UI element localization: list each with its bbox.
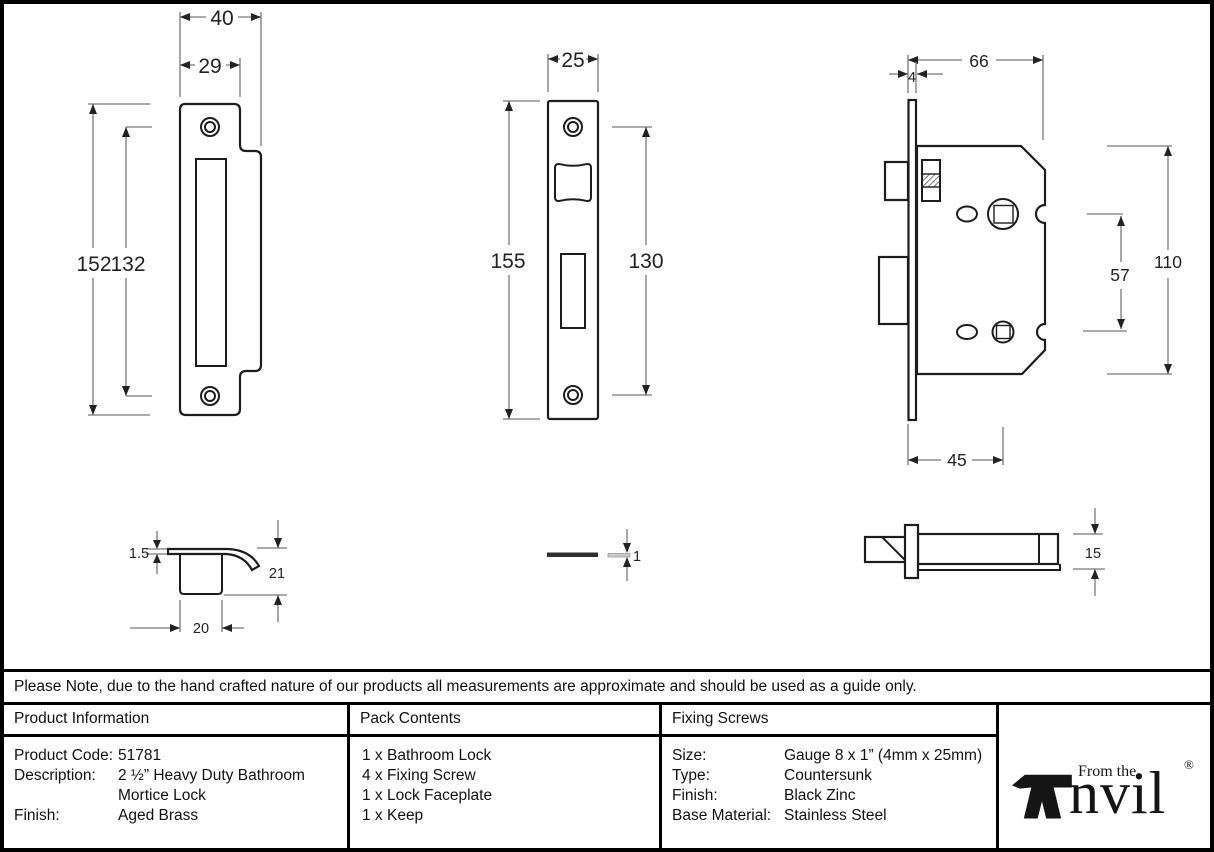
lock-faceplate-edge	[909, 100, 917, 420]
dim-keep-width: 20	[193, 621, 209, 637]
spec-table: Product Information Product Code: 51781 …	[4, 702, 1210, 848]
row-value: Black Zinc	[784, 786, 996, 806]
dim-keep-outer-width: 40	[210, 7, 233, 30]
registered-mark: ®	[1184, 757, 1194, 773]
row-label: Finish:	[14, 806, 118, 826]
row-value: Countersunk	[784, 766, 996, 786]
dim-body-height: 110	[1154, 252, 1182, 272]
pack-item: 1 x Bathroom Lock	[362, 746, 659, 766]
pack-item: 1 x Keep	[362, 806, 659, 826]
table-row: Description: 2 ½” Heavy Duty Bathroom Mo…	[14, 766, 347, 806]
keep-pocket	[180, 554, 222, 594]
table-row: Type: Countersunk	[672, 766, 996, 786]
table-row: Finish: Aged Brass	[14, 806, 347, 826]
dim-body-depth: 66	[969, 51, 988, 71]
dim-follower-spacing: 57	[1110, 265, 1129, 285]
table-row: Product Code: 51781	[14, 746, 347, 766]
row-label: Base Material:	[672, 806, 784, 826]
row-value: Gauge 8 x 1” (4mm x 25mm)	[784, 746, 996, 766]
technical-drawing: 40 29 152 132	[0, 0, 1214, 669]
latch-bolt	[885, 162, 908, 200]
faceplate-front-view: 25 155 130	[490, 49, 663, 419]
column-header: Product Information	[4, 705, 347, 737]
pack-item: 1 x Lock Faceplate	[362, 786, 659, 806]
dim-keep-depth: 21	[269, 566, 285, 582]
row-label: Product Code:	[14, 746, 118, 766]
keep-side-view: 1.5 21 20	[129, 520, 287, 637]
product-information-column: Product Information Product Code: 51781 …	[4, 705, 350, 848]
disclaimer-note: Please Note, due to the hand crafted nat…	[4, 669, 1210, 702]
pack-item: 4 x Fixing Screw	[362, 766, 659, 786]
pack-contents-column: Pack Contents 1 x Bathroom Lock 4 x Fixi…	[350, 705, 662, 848]
bolt-faceplate-section	[905, 525, 918, 578]
faceplate-edge-bar	[547, 553, 598, 558]
dim-bolt-height: 15	[1085, 546, 1101, 562]
dim-faceplate-thickness: 1	[633, 549, 641, 565]
dim-keep-overall-height: 152	[76, 253, 111, 276]
row-label: Description:	[14, 766, 118, 806]
faceplate-edge-ref	[608, 554, 630, 558]
dim-faceplate-overall-height: 155	[490, 250, 525, 273]
dim-keep-inner-width: 29	[198, 55, 221, 78]
row-value: 51781	[118, 746, 313, 766]
table-row: Size: Gauge 8 x 1” (4mm x 25mm)	[672, 746, 996, 766]
dim-faceplate-width: 25	[561, 49, 584, 72]
anvil-icon	[1011, 765, 1075, 825]
table-row: Base Material: Stainless Steel	[672, 806, 996, 826]
keep-plate-outline	[180, 104, 261, 415]
bolt-body	[918, 534, 1058, 564]
row-value: Stainless Steel	[784, 806, 996, 826]
keep-lip-profile	[168, 549, 259, 570]
dim-keep-hole-spacing: 132	[110, 253, 145, 276]
fixing-screws-column: Fixing Screws Size: Gauge 8 x 1” (4mm x …	[662, 705, 999, 848]
row-value: Aged Brass	[118, 806, 313, 826]
row-label: Type:	[672, 766, 784, 786]
dim-plate-thickness: 4	[908, 70, 916, 86]
keep-front-view: 40 29 152 132	[76, 7, 261, 415]
row-label: Finish:	[672, 786, 784, 806]
row-label: Size:	[672, 746, 784, 766]
dim-backset: 45	[947, 450, 966, 470]
from-the-anvil-logo: From the nvil ®	[1011, 757, 1211, 841]
deadbolt	[879, 257, 908, 324]
product-spec-sheet: 40 29 152 132	[0, 0, 1214, 852]
latch-spring-hatch	[922, 174, 940, 187]
bolt-side-view: 15	[865, 508, 1105, 596]
faceplate-outline	[548, 101, 598, 419]
brand-column: From the nvil ®	[999, 705, 1210, 848]
logo-wordmark: nvil	[1069, 763, 1166, 823]
faceplate-edge-view: 1	[547, 529, 641, 581]
table-row: Finish: Black Zinc	[672, 786, 996, 806]
lock-body-view: 66 4 110 57 45	[879, 51, 1182, 470]
column-header: Pack Contents	[350, 705, 659, 737]
column-header: Fixing Screws	[662, 705, 996, 737]
note-text: Please Note, due to the hand crafted nat…	[14, 678, 917, 696]
dim-keep-plate-thickness: 1.5	[129, 546, 149, 562]
row-value: 2 ½” Heavy Duty Bathroom Mortice Lock	[118, 766, 313, 806]
dim-faceplate-hole-spacing: 130	[628, 250, 663, 273]
